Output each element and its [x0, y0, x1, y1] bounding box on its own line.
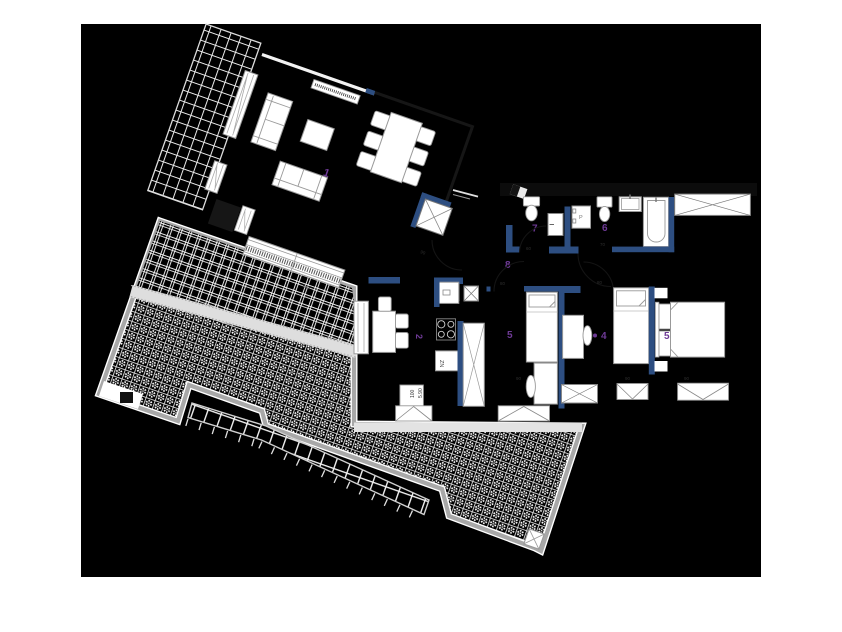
- svg-text:70: 70: [600, 242, 606, 247]
- svg-text:4: 4: [601, 331, 607, 342]
- svg-text:ZN: ZN: [438, 360, 444, 367]
- svg-text:5: 5: [664, 331, 670, 342]
- svg-text:80: 80: [500, 281, 506, 286]
- svg-text:90: 90: [625, 376, 631, 381]
- svg-text:100: 100: [410, 389, 416, 398]
- svg-text:60: 60: [526, 246, 532, 251]
- svg-text:5: 5: [507, 330, 513, 341]
- svg-text:90: 90: [684, 376, 690, 381]
- svg-text:5.90: 5.90: [418, 388, 424, 398]
- svg-text:6: 6: [602, 223, 608, 234]
- svg-text:90: 90: [516, 376, 522, 381]
- svg-text:2: 2: [414, 334, 424, 339]
- svg-text:80: 80: [597, 280, 603, 285]
- svg-text:P: P: [579, 215, 583, 221]
